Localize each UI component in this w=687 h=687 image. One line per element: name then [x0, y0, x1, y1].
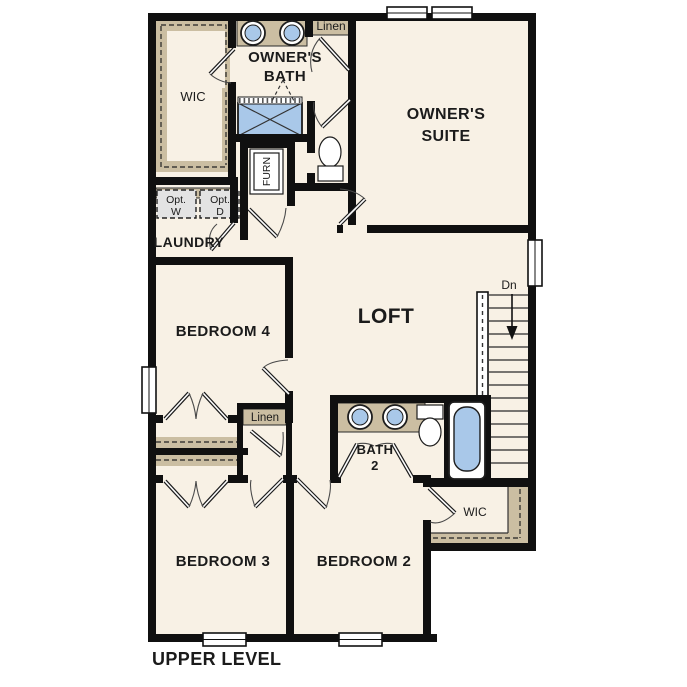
- toilet-bath2-tank: [417, 405, 443, 419]
- label-linen-upper: Linen: [316, 19, 345, 33]
- wall-bath2-west: [330, 395, 338, 483]
- wall-linen-mid-right: [286, 403, 292, 475]
- wall-closet-divider: [148, 448, 248, 455]
- wall-linen-mid-top: [237, 403, 292, 409]
- label-bedroom3: BEDROOM 3: [176, 553, 270, 570]
- floor-plan: WIC OWNER'S BATH Linen OWNER'S SUITE FUR…: [0, 0, 687, 687]
- wall-furnace-right: [287, 140, 295, 206]
- label-bath2-2: 2: [371, 458, 379, 473]
- wall-wic-lower-bottom: [427, 543, 536, 551]
- wall-wic-upper-bottom: [148, 177, 238, 185]
- wall-owners-suite-bottom-b: [367, 225, 536, 233]
- wall-bedroom2-right-b: [423, 520, 431, 642]
- label-bedroom4: BEDROOM 4: [176, 323, 271, 340]
- toilet-owners-bowl: [319, 137, 341, 167]
- wall-furnace-top: [240, 140, 295, 148]
- wall-laundry-right: [230, 185, 238, 223]
- wall-wic-upper-right-a: [228, 13, 236, 48]
- wall-exterior-left: [148, 13, 156, 642]
- toilet-bath2-bowl: [419, 418, 441, 446]
- label-opt-dryer-2: D: [216, 206, 224, 218]
- label-opt-washer-2: W: [171, 206, 181, 218]
- wall-wic-upper-right-b: [228, 82, 236, 177]
- wall-bedroom3-top-c: [283, 475, 297, 483]
- plan-title: UPPER LEVEL: [152, 649, 281, 669]
- bathtub-basin: [454, 407, 480, 471]
- label-owners-suite-2: SUITE: [421, 128, 470, 145]
- label-wic-upper: WIC: [180, 89, 205, 104]
- label-owners-suite-1: OWNER'S: [407, 106, 486, 123]
- sink-bath2-2-basin: [387, 409, 403, 425]
- wall-vanity-linen-divider: [305, 13, 313, 37]
- wall-linen-mid-left: [237, 403, 243, 475]
- wall-furnace-left: [240, 140, 248, 240]
- label-bedroom2: BEDROOM 2: [317, 553, 411, 570]
- label-linen-mid: Linen: [251, 412, 279, 424]
- wall-exterior-right-lower: [528, 285, 536, 551]
- label-bath2-1: BATH: [357, 442, 394, 457]
- sink-bath2-1-basin: [352, 409, 368, 425]
- wall-bedroom3-top-a: [148, 475, 163, 483]
- floor-plan-page: WIC OWNER'S BATH Linen OWNER'S SUITE FUR…: [0, 0, 687, 687]
- wall-bedroom4-right-a: [285, 257, 293, 358]
- label-wic-lower: WIC: [463, 505, 487, 519]
- label-loft: LOFT: [358, 305, 414, 328]
- label-laundry: LAUNDRY: [154, 234, 225, 250]
- label-opt-washer-1: Opt.: [166, 194, 186, 206]
- label-furnace: FURN: [261, 157, 273, 186]
- wall-laundry-bottom: [148, 257, 293, 265]
- sink-owners-1-basin: [245, 25, 261, 41]
- toilet-owners-tank: [318, 166, 343, 181]
- label-opt-dryer-1: Opt.: [210, 194, 230, 206]
- wall-bedroom3-top-b: [228, 475, 248, 483]
- sink-owners-2-basin: [284, 25, 300, 41]
- label-owners-bath-1: OWNER'S: [248, 49, 322, 66]
- wall-owners-suite-left: [348, 13, 356, 225]
- wall-bedroom-divider: [286, 483, 294, 642]
- wall-bedroom4-bottom-a: [148, 415, 163, 423]
- wall-owners-suite-bottom-a: [337, 225, 343, 233]
- wall-exterior-right-upper: [528, 13, 536, 240]
- label-stairs-dn: Dn: [501, 278, 516, 292]
- label-owners-bath-2: BATH: [264, 68, 306, 85]
